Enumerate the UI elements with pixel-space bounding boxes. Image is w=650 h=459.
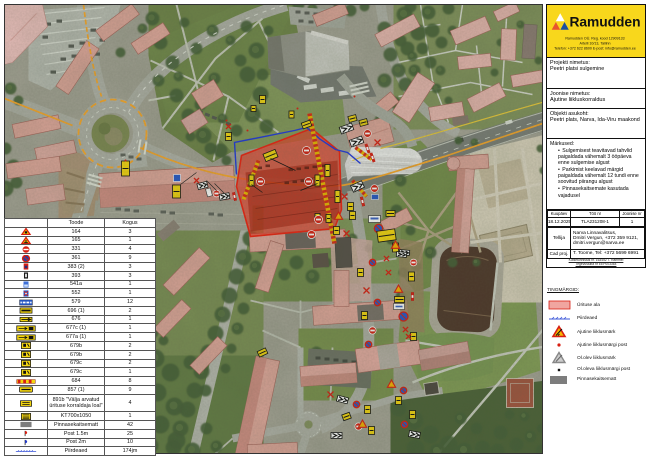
svg-text:Artelli 10/13, Tallinn: Artelli 10/13, Tallinn [579, 42, 610, 46]
svg-text:Ramudden OÜ. Reg. kood 1290913: Ramudden OÜ. Reg. kood 12909133 [565, 37, 624, 41]
svg-text:Telefon: +372 622 8600 E-post: Telefon: +372 622 8600 E-post: info@ramu… [554, 47, 636, 51]
svg-text:Ramudden: Ramudden [570, 15, 641, 30]
